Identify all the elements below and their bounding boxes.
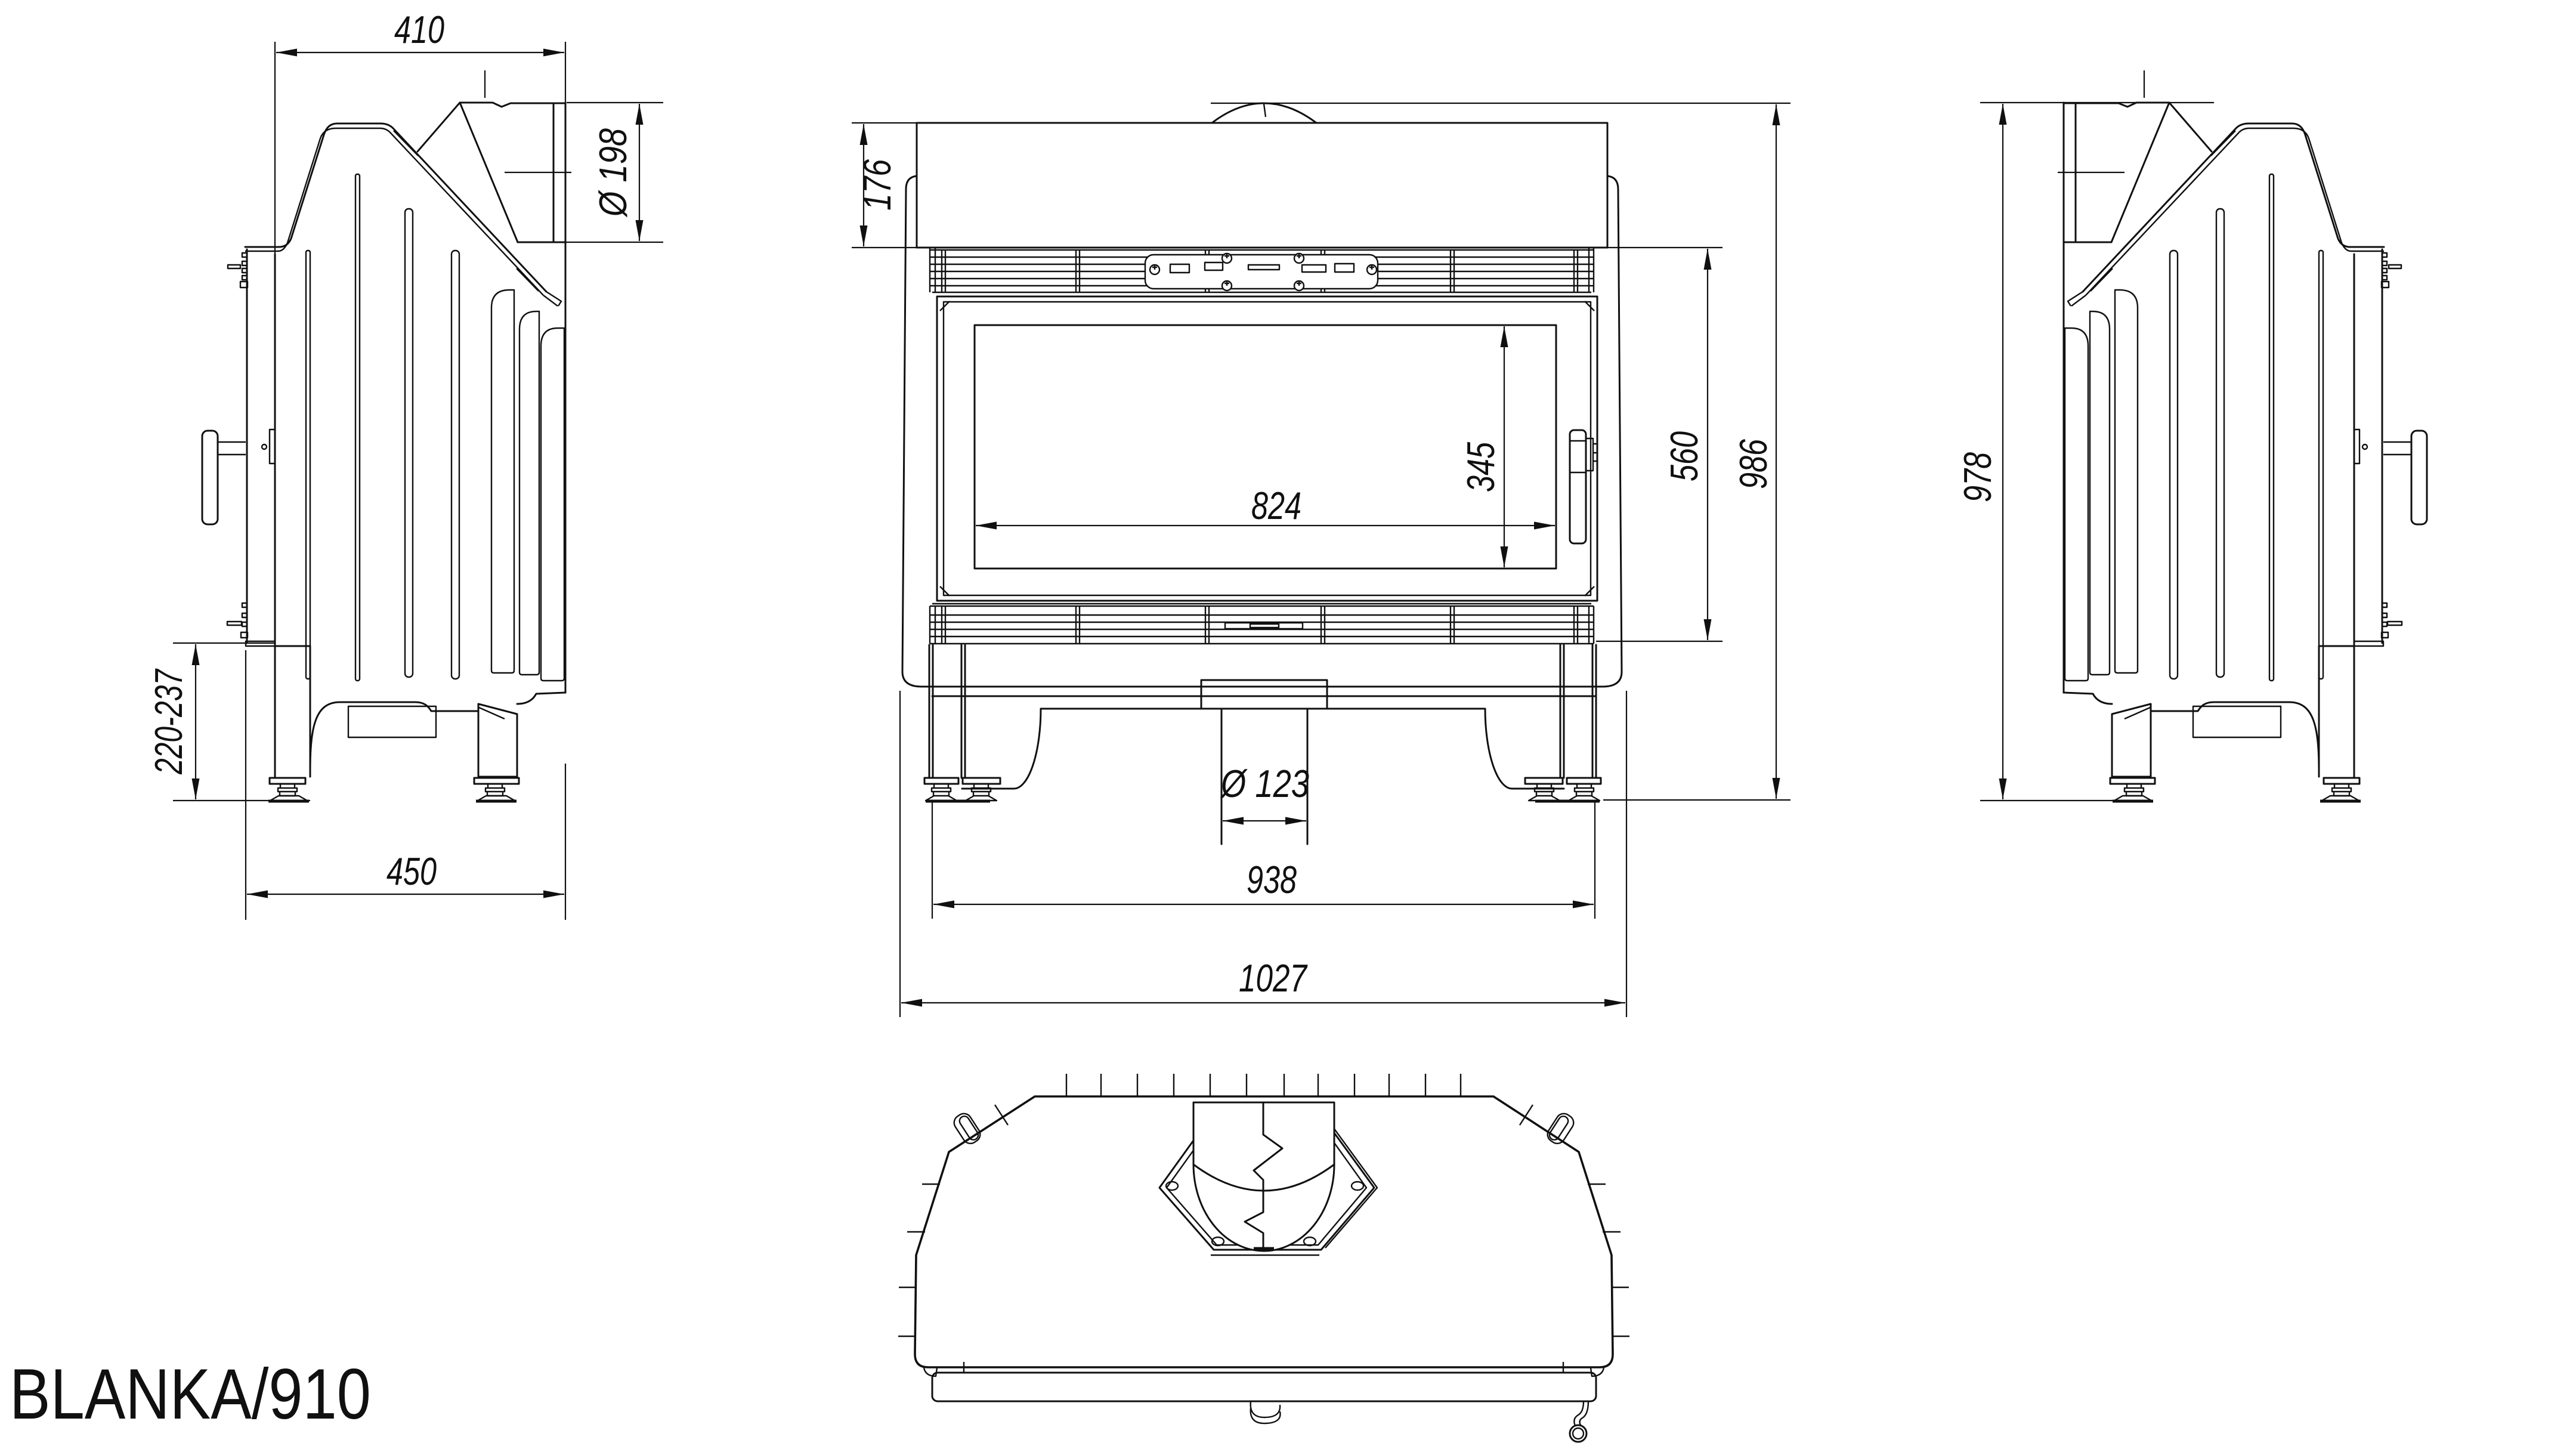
svg-text:978: 978 (1956, 452, 1999, 502)
svg-text:986: 986 (1731, 438, 1775, 489)
svg-text:560: 560 (1662, 431, 1706, 481)
svg-text:220-237: 220-237 (147, 668, 190, 775)
svg-text:450: 450 (386, 849, 437, 893)
svg-text:176: 176 (855, 159, 899, 211)
svg-text:345: 345 (1459, 441, 1502, 492)
svg-text:410: 410 (394, 8, 444, 51)
svg-text:824: 824 (1251, 484, 1301, 527)
svg-text:938: 938 (1247, 858, 1297, 901)
svg-text:1027: 1027 (1239, 956, 1308, 1000)
svg-text:BLANKA/910: BLANKA/910 (10, 1354, 371, 1434)
svg-text:Ø 123: Ø 123 (1220, 762, 1309, 805)
svg-text:Ø 198: Ø 198 (591, 128, 635, 218)
